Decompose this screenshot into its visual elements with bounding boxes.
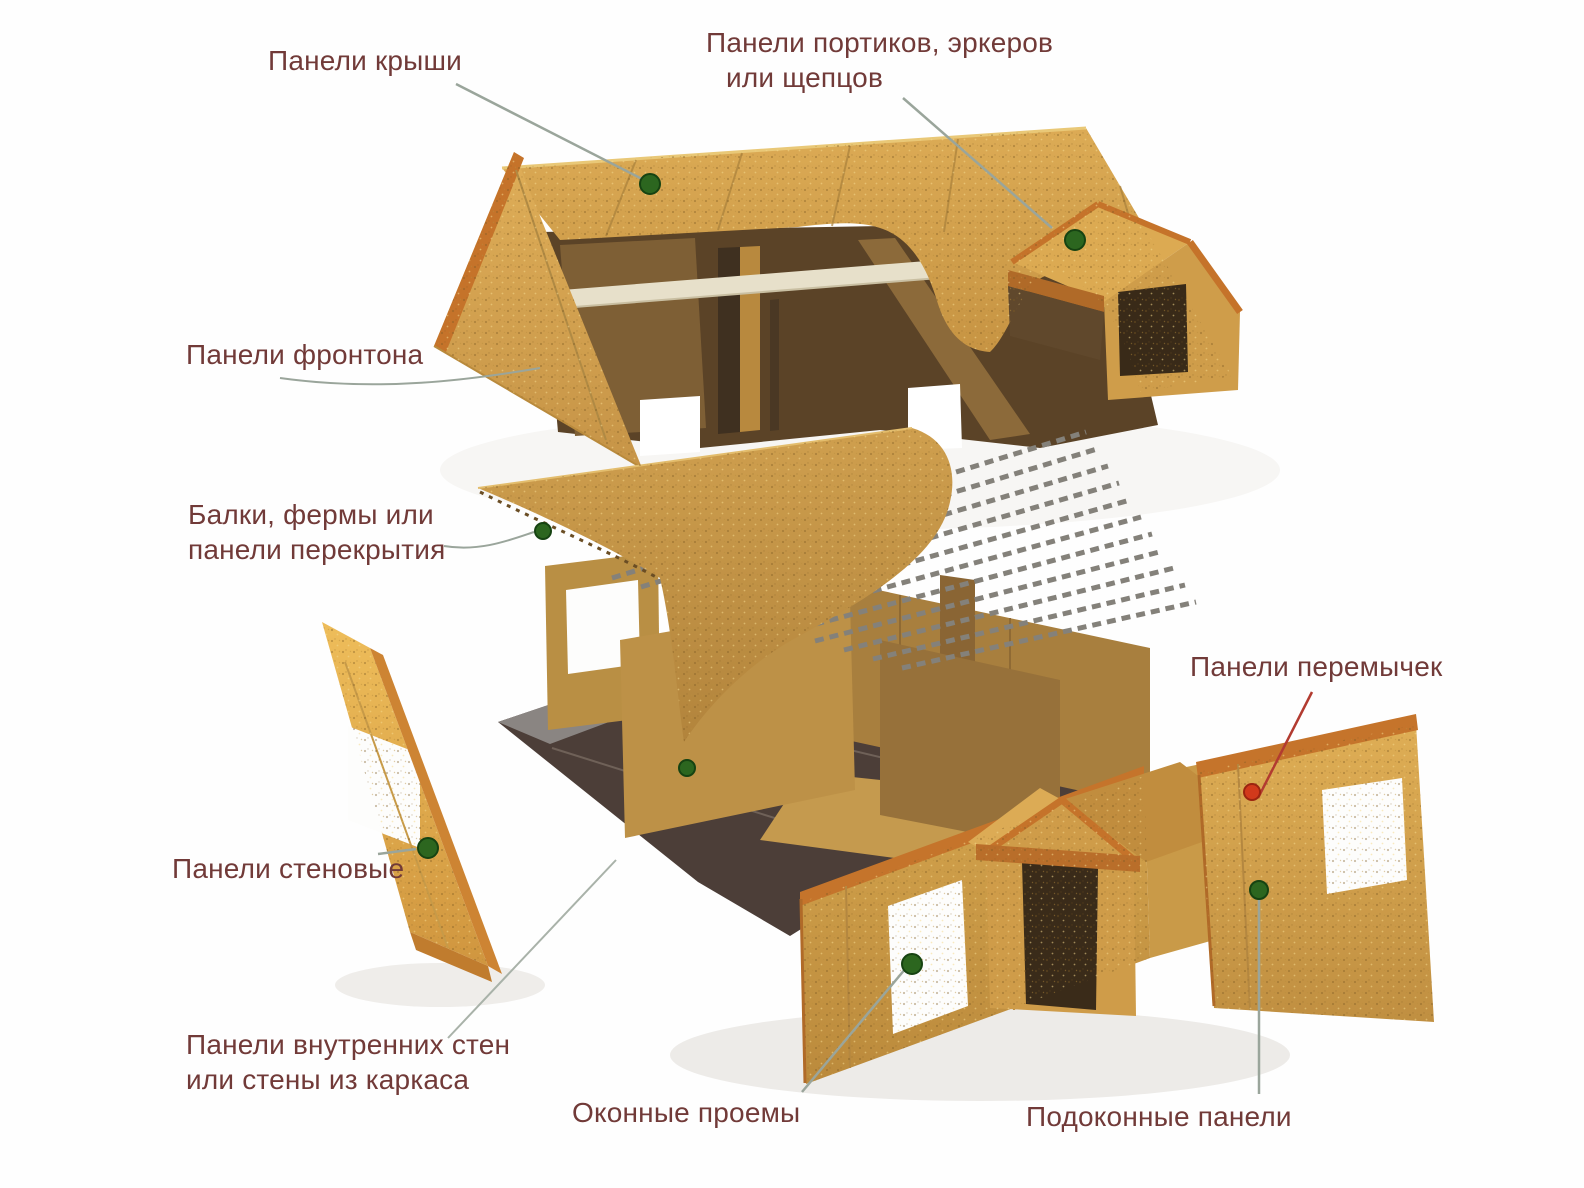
label-window-openings: Оконные проемы [572, 1096, 800, 1131]
attic-post-light [740, 246, 760, 432]
label-text: Панели внутренних стен [186, 1028, 510, 1063]
marker-dot-interior [679, 760, 695, 776]
label-text: Подоконные панели [1026, 1100, 1292, 1135]
label-text: Панели перемычек [1190, 650, 1442, 685]
osb-texture-overlay [0, 0, 1584, 1188]
label-portico-panels: Панели портиков, эркеров или щепцов [706, 26, 1053, 95]
marker-dot-lintel [1244, 784, 1260, 800]
label-beams-trusses: Балки, фермы или панели перекрытия [188, 498, 445, 567]
marker-dot-beams [535, 523, 551, 539]
attic-post-dark-2 [770, 299, 779, 431]
label-lintel-panels: Панели перемычек [1190, 650, 1442, 685]
label-text: Оконные проемы [572, 1096, 800, 1131]
diagram-page: Панели крыши Панели портиков, эркеров ил… [0, 0, 1584, 1188]
marker-dot-sill [1250, 881, 1268, 899]
label-text: Панели портиков, эркеров [706, 26, 1053, 61]
label-text: или стены из каркаса [186, 1063, 510, 1098]
marker-dot-window [902, 954, 922, 974]
label-wall-panels: Панели стеновые [172, 852, 404, 887]
attic-post-dark [718, 247, 740, 434]
marker-dot-portico [1065, 230, 1085, 250]
label-text: или щепцов [726, 61, 1053, 96]
label-text: Панели крыши [268, 44, 462, 79]
label-interior-walls: Панели внутренних стен или стены из карк… [186, 1028, 510, 1097]
exploded-house-diagram [0, 0, 1584, 1188]
label-text: Панели стеновые [172, 852, 404, 887]
leader-line-beams [444, 532, 534, 548]
label-sill-panels: Подоконные панели [1026, 1100, 1292, 1135]
label-gable-panels: Панели фронтона [186, 338, 423, 373]
label-text: Балки, фермы или [188, 498, 445, 533]
label-text: Панели фронтона [186, 338, 423, 373]
marker-dot-wall [418, 838, 438, 858]
label-text: панели перекрытия [188, 533, 445, 568]
marker-dot-roof [640, 174, 660, 194]
attic-gap [640, 396, 700, 456]
label-roof-panels: Панели крыши [268, 44, 462, 79]
